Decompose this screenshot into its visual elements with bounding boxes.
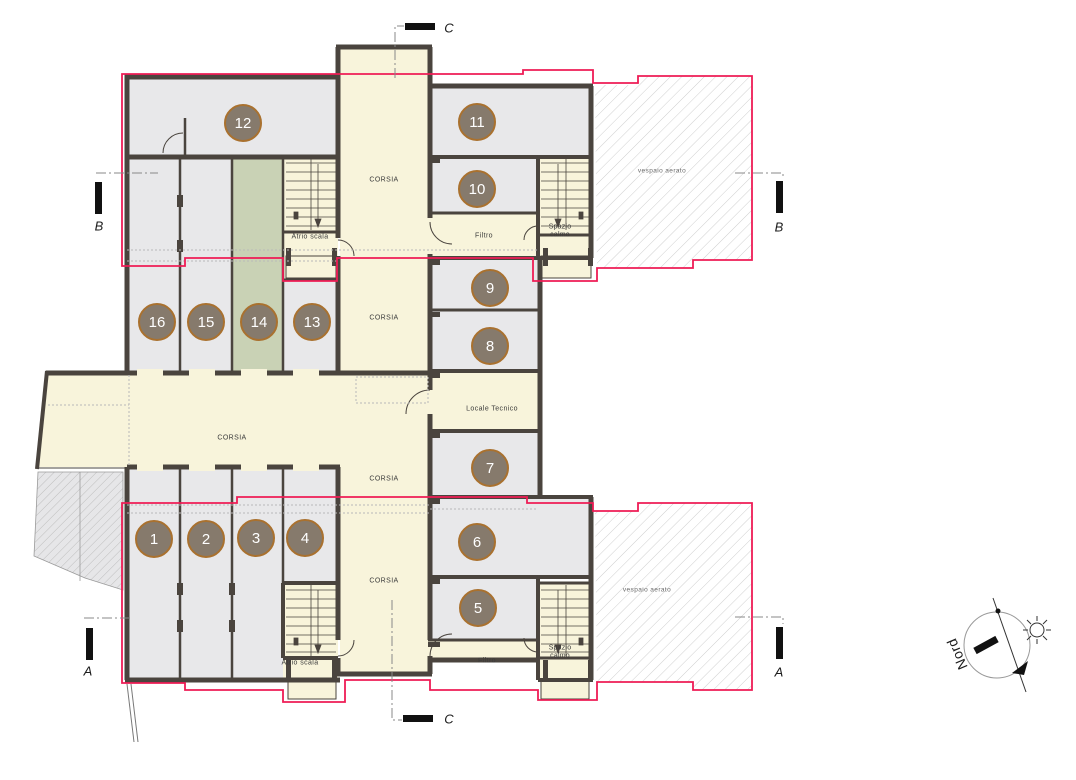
room-badge-7: 7 (471, 449, 509, 487)
corridor-label-lower: CORSIA (369, 476, 398, 483)
section-bar-b-right (776, 181, 783, 213)
label-atrio-scala-top: Atrio scala (291, 234, 328, 241)
room-badge-14: 14 (240, 303, 278, 341)
label-spazio-calmo-top: Spazio calmo (541, 224, 579, 241)
corridor-label-bottom: CORSIA (369, 578, 398, 585)
section-letter-b-right: B (775, 220, 784, 235)
section-letter-c-top: C (444, 21, 453, 36)
room-badge-16: 16 (138, 303, 176, 341)
label-filtro-bottom: Filtro (478, 658, 496, 665)
floor-plan: 1 2 3 4 5 6 7 8 9 10 11 12 13 14 15 16 C… (0, 0, 1076, 780)
floor-plan-drawing (0, 0, 1076, 780)
room-badge-1: 1 (135, 520, 173, 558)
compass-north-dot (996, 609, 1001, 614)
corridor-horizontal-area (38, 373, 430, 467)
section-letter-b-left: B (95, 219, 104, 234)
corridor-label-mid: CORSIA (369, 315, 398, 322)
label-spazio-calmo-bottom: Spazio calmo (541, 645, 579, 662)
room-badge-13: 13 (293, 303, 331, 341)
left-hatch-area (34, 472, 123, 590)
section-bar-a-left (86, 628, 93, 660)
vespaio-bottom-area (595, 503, 752, 690)
section-letter-c-bottom: C (444, 712, 453, 727)
locale-tecnico-area (428, 371, 538, 431)
room-badge-6: 6 (458, 523, 496, 561)
corridor-label-horizontal: CORSIA (217, 435, 246, 442)
room-badge-12: 12 (224, 104, 262, 142)
section-bar-c-top (405, 23, 435, 30)
corridor-label-top: CORSIA (369, 177, 398, 184)
compass-needle (975, 639, 997, 651)
compass-arrowhead (1012, 661, 1028, 675)
room-badge-4: 4 (286, 519, 324, 557)
room-badge-10: 10 (458, 170, 496, 208)
section-bar-c-bottom (403, 715, 433, 722)
label-atrio-scala-bottom: Atrio scala (281, 660, 318, 667)
sun-icon (1023, 616, 1051, 644)
section-letter-a-left: A (84, 664, 93, 679)
label-vespaio-aerato-bottom: vespaio aerato (623, 587, 671, 594)
section-letter-a-right: A (775, 665, 784, 680)
room-badge-8: 8 (471, 327, 509, 365)
section-bar-a-right (776, 627, 783, 659)
section-bar-b-left (95, 182, 102, 214)
room-badge-15: 15 (187, 303, 225, 341)
north-compass (964, 598, 1051, 692)
room-badge-5: 5 (459, 589, 497, 627)
label-locale-tecnico: Locale Tecnico (466, 406, 518, 413)
label-vespaio-aerato-top: vespaio aerato (638, 168, 686, 175)
room-badge-2: 2 (187, 520, 225, 558)
room-badge-11: 11 (458, 103, 496, 141)
label-filtro-top: Filtro (475, 233, 493, 240)
boundary-lines (127, 684, 138, 742)
room-badge-3: 3 (237, 519, 275, 557)
room-badge-9: 9 (471, 269, 509, 307)
